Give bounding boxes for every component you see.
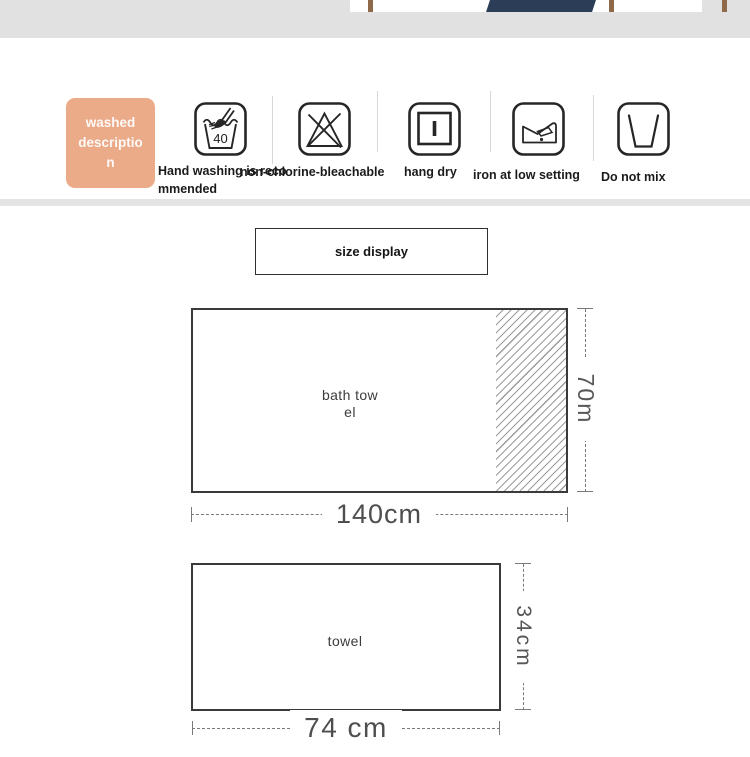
do-not-mix-icon bbox=[616, 101, 671, 157]
no-chlorine-bleach-icon bbox=[297, 101, 352, 157]
care-divider bbox=[593, 95, 594, 161]
care-divider bbox=[272, 96, 273, 164]
product-description-page: washed descriptio n 40 bbox=[0, 0, 750, 757]
towel-label: towel bbox=[295, 633, 395, 650]
care-item-label-iron-low: iron at low setting bbox=[473, 167, 580, 185]
dimension-tick bbox=[567, 507, 568, 522]
bath-towel-height-label: 70m bbox=[573, 357, 599, 441]
towel-height-label: 34cm bbox=[510, 591, 536, 683]
wash-temperature-text: 40 bbox=[213, 131, 227, 146]
size-display-title-box: size display bbox=[255, 228, 488, 275]
dimension-tick bbox=[499, 721, 500, 735]
wood-rack-leg bbox=[368, 0, 373, 12]
washed-description-badge: washed descriptio n bbox=[66, 98, 155, 188]
towel-width-label: 74 cm bbox=[290, 710, 402, 746]
dimension-tick bbox=[577, 491, 593, 492]
care-item-label-no-chlorine: non-chlorine-bleachable bbox=[240, 164, 384, 182]
wood-rack-leg bbox=[722, 0, 727, 12]
bath-towel-label-line: el bbox=[300, 404, 400, 421]
iron-low-setting-icon bbox=[511, 101, 566, 157]
badge-line: n bbox=[106, 156, 114, 170]
dimension-tick bbox=[577, 308, 593, 309]
care-divider bbox=[377, 91, 378, 152]
bath-towel-width-label: 140cm bbox=[322, 496, 436, 532]
dimension-tick bbox=[515, 709, 531, 710]
dimension-tick bbox=[191, 507, 192, 522]
badge-line: descriptio bbox=[78, 136, 143, 150]
care-item-label-hang-dry: hang dry bbox=[404, 164, 457, 182]
care-divider bbox=[490, 91, 491, 152]
product-photo-sliver bbox=[350, 0, 702, 12]
dimension-tick bbox=[192, 721, 193, 735]
bath-towel-label-line: bath tow bbox=[300, 387, 400, 404]
bath-towel-label: bath tow el bbox=[300, 387, 400, 421]
wood-rack-leg bbox=[609, 0, 614, 12]
care-item-label-do-not-mix: Do not mix bbox=[601, 169, 666, 187]
dimension-tick bbox=[515, 563, 531, 564]
section-separator-strip bbox=[0, 199, 750, 206]
hang-dry-icon bbox=[407, 101, 462, 157]
hand-wash-40-icon: 40 bbox=[193, 101, 248, 157]
badge-line: washed bbox=[86, 116, 136, 130]
navy-towel-photo-fragment bbox=[486, 0, 596, 12]
size-display-title: size display bbox=[335, 244, 408, 259]
